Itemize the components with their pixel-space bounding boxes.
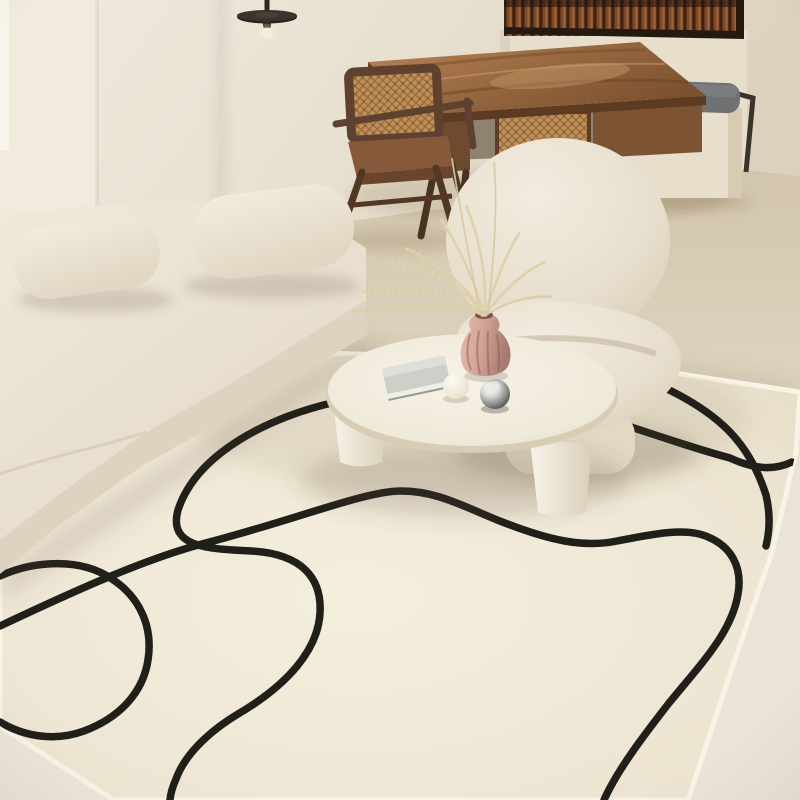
scene-canvas	[0, 0, 800, 800]
living-room-photo	[0, 0, 800, 800]
vignette-overlay	[0, 0, 800, 800]
